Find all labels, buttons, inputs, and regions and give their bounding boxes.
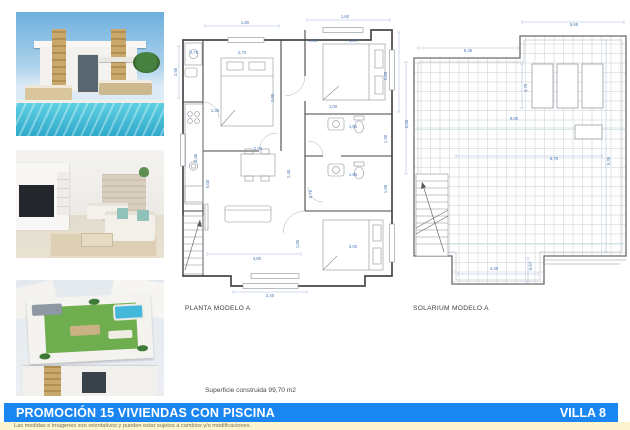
svg-text:1,80: 1,80 [241,20,250,25]
svg-text:5,00: 5,00 [404,119,409,128]
window [82,372,107,393]
promo-banner-title: PROMOCIÓN 15 VIVIENDAS CON PISCINA [16,406,275,420]
bush [39,353,51,360]
glass-door [77,54,100,93]
svg-text:2,00: 2,00 [270,93,275,102]
svg-text:1,50: 1,50 [349,124,358,129]
floor-plan-solarium: 5,655,454,755,009,005,705,354,300,97 [402,6,630,304]
jacuzzi [112,304,144,321]
terrace-table [70,324,100,336]
svg-text:5,70: 5,70 [550,156,559,161]
planta-label: PLANTA MODELO A [185,305,251,312]
coffee-table [81,233,113,247]
svg-text:1,60: 1,60 [341,14,350,19]
photo-villa-exterior [16,12,164,136]
photo-living-room [16,150,164,258]
svg-text:4,75: 4,75 [523,83,528,92]
svg-text:2,70: 2,70 [238,50,247,55]
solarium-label: SOLARIUM MODELO A [413,305,489,312]
svg-text:1,90: 1,90 [383,134,388,143]
svg-text:5,65: 5,65 [570,22,579,27]
floor-plan-planta: 1,801,602,500,782,702,000,653,001,002,00… [173,6,403,304]
svg-text:4,30: 4,30 [490,266,499,271]
svg-text:3,00: 3,00 [349,38,358,43]
svg-text:0,60: 0,60 [193,153,198,162]
svg-text:0,65: 0,65 [309,38,318,43]
svg-text:3,80: 3,80 [253,256,262,261]
disclaimer-text: Las medidas e imagenes son orientativos … [14,423,251,429]
svg-text:2,50: 2,50 [173,67,178,76]
outdoor-sofa [99,80,152,95]
sun-lounger [25,85,72,101]
photo-rooftop-solarium [16,280,164,396]
bush [137,345,149,352]
svg-text:0,78: 0,78 [190,50,199,55]
building-facade [22,366,158,396]
swimming-pool [16,103,164,136]
svg-text:1,00: 1,00 [329,104,338,109]
svg-text:2,00: 2,00 [383,71,388,80]
promo-banner: PROMOCIÓN 15 VIVIENDAS CON PISCINA VILLA… [4,403,618,422]
svg-text:5,45: 5,45 [464,48,473,53]
svg-text:1,60: 1,60 [349,172,358,177]
plant [139,167,149,177]
cushion [117,208,129,219]
svg-text:3,00: 3,00 [349,244,358,249]
cushion [137,210,149,221]
awning [99,57,137,62]
svg-text:2,40: 2,40 [266,293,275,298]
svg-text:0,75: 0,75 [308,189,313,198]
terrace-sofa [32,304,62,316]
tv-screen [19,185,55,217]
svg-text:0,97: 0,97 [528,261,533,270]
superficie-text: Superficie construida 99,70 m2 [205,387,296,394]
svg-text:2,05: 2,05 [254,146,263,151]
svg-text:1,35: 1,35 [211,108,220,113]
palm-tree [133,52,160,73]
stone-strip [44,366,62,396]
svg-text:5,35: 5,35 [606,156,611,165]
shelving [57,172,69,215]
roof-terrace [26,293,154,364]
svg-text:5,00: 5,00 [205,179,210,188]
stone-pillar [52,29,67,93]
villa-number: VILLA 8 [560,406,606,420]
svg-text:1,90: 1,90 [383,184,388,193]
svg-text:1,05: 1,05 [295,239,300,248]
brochure-page: 1,801,602,500,782,702,000,653,001,002,00… [0,0,630,430]
svg-text:1,40: 1,40 [286,169,291,178]
svg-text:9,00: 9,00 [510,116,519,121]
disclaimer-strip: Las medidas e imagenes son orientativos … [0,422,630,430]
